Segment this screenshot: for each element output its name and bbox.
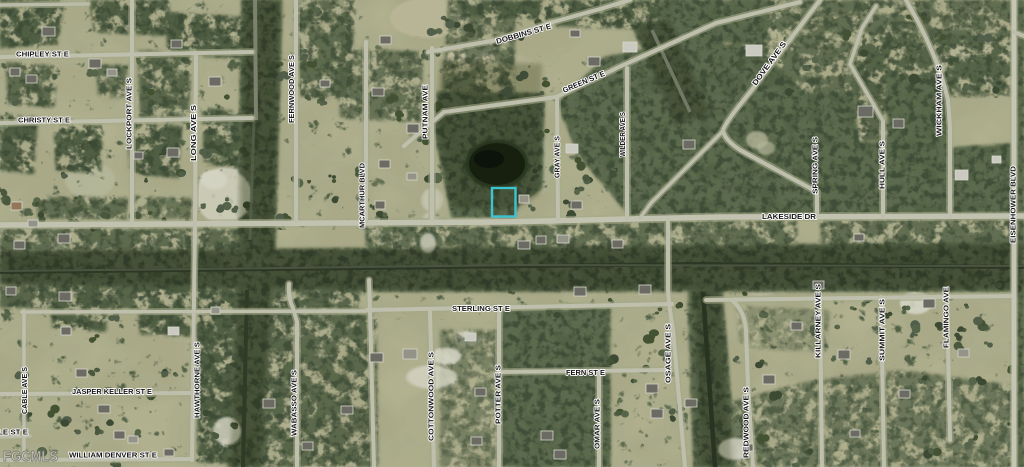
svg-text:LE ST E: LE ST E <box>0 428 28 437</box>
svg-text:LOCKPORT AVE S: LOCKPORT AVE S <box>125 78 134 149</box>
svg-text:MCARTHUR BLVD: MCARTHUR BLVD <box>358 163 367 228</box>
svg-text:COTTONWOOD AVE S: COTTONWOOD AVE S <box>427 352 436 441</box>
svg-text:REDWOOD AVE S: REDWOOD AVE S <box>742 387 751 458</box>
svg-text:FERN ST E: FERN ST E <box>566 368 605 377</box>
svg-text:FGCMLS: FGCMLS <box>3 448 58 465</box>
svg-text:LONG AVE S: LONG AVE S <box>189 105 198 161</box>
svg-text:KILLARNEY AVE S: KILLARNEY AVE S <box>814 284 823 358</box>
svg-text:POTTER AVE S: POTTER AVE S <box>494 365 503 424</box>
svg-text:OSAGE AVE S: OSAGE AVE S <box>664 324 673 383</box>
svg-text:GRAY AVE S: GRAY AVE S <box>553 136 562 178</box>
svg-text:WILDER AVE S: WILDER AVE S <box>618 112 627 157</box>
svg-text:CABLE AVE S: CABLE AVE S <box>20 367 29 414</box>
svg-text:SUMMIT AVE S: SUMMIT AVE S <box>878 299 887 361</box>
svg-text:EISENHOWER BLVD: EISENHOWER BLVD <box>1009 165 1018 243</box>
svg-text:CHRISTY ST E: CHRISTY ST E <box>18 116 70 125</box>
svg-text:JASPER KELLER ST E: JASPER KELLER ST E <box>72 387 152 396</box>
svg-text:SPRING AVE S: SPRING AVE S <box>811 137 820 194</box>
svg-text:STERLING ST E: STERLING ST E <box>452 304 510 313</box>
svg-text:FERNWOOD AVE S: FERNWOOD AVE S <box>287 55 296 123</box>
svg-text:WABASSO AVE S: WABASSO AVE S <box>290 370 299 436</box>
svg-text:HAWTHORNE AVE S: HAWTHORNE AVE S <box>193 342 202 418</box>
svg-text:WICKHAM AVE S: WICKHAM AVE S <box>935 65 944 136</box>
svg-text:HULL AVE S: HULL AVE S <box>878 141 887 189</box>
svg-text:CHIPLEY ST E: CHIPLEY ST E <box>16 50 69 59</box>
svg-text:OMAR AVE S: OMAR AVE S <box>593 399 602 449</box>
svg-text:FLAMINGO AVE: FLAMINGO AVE <box>942 287 951 348</box>
svg-text:PUTNAM AVE: PUTNAM AVE <box>421 85 430 139</box>
svg-text:LAKESIDE DR: LAKESIDE DR <box>762 212 817 221</box>
svg-text:WILLIAM DENVER ST E: WILLIAM DENVER ST E <box>69 451 157 460</box>
